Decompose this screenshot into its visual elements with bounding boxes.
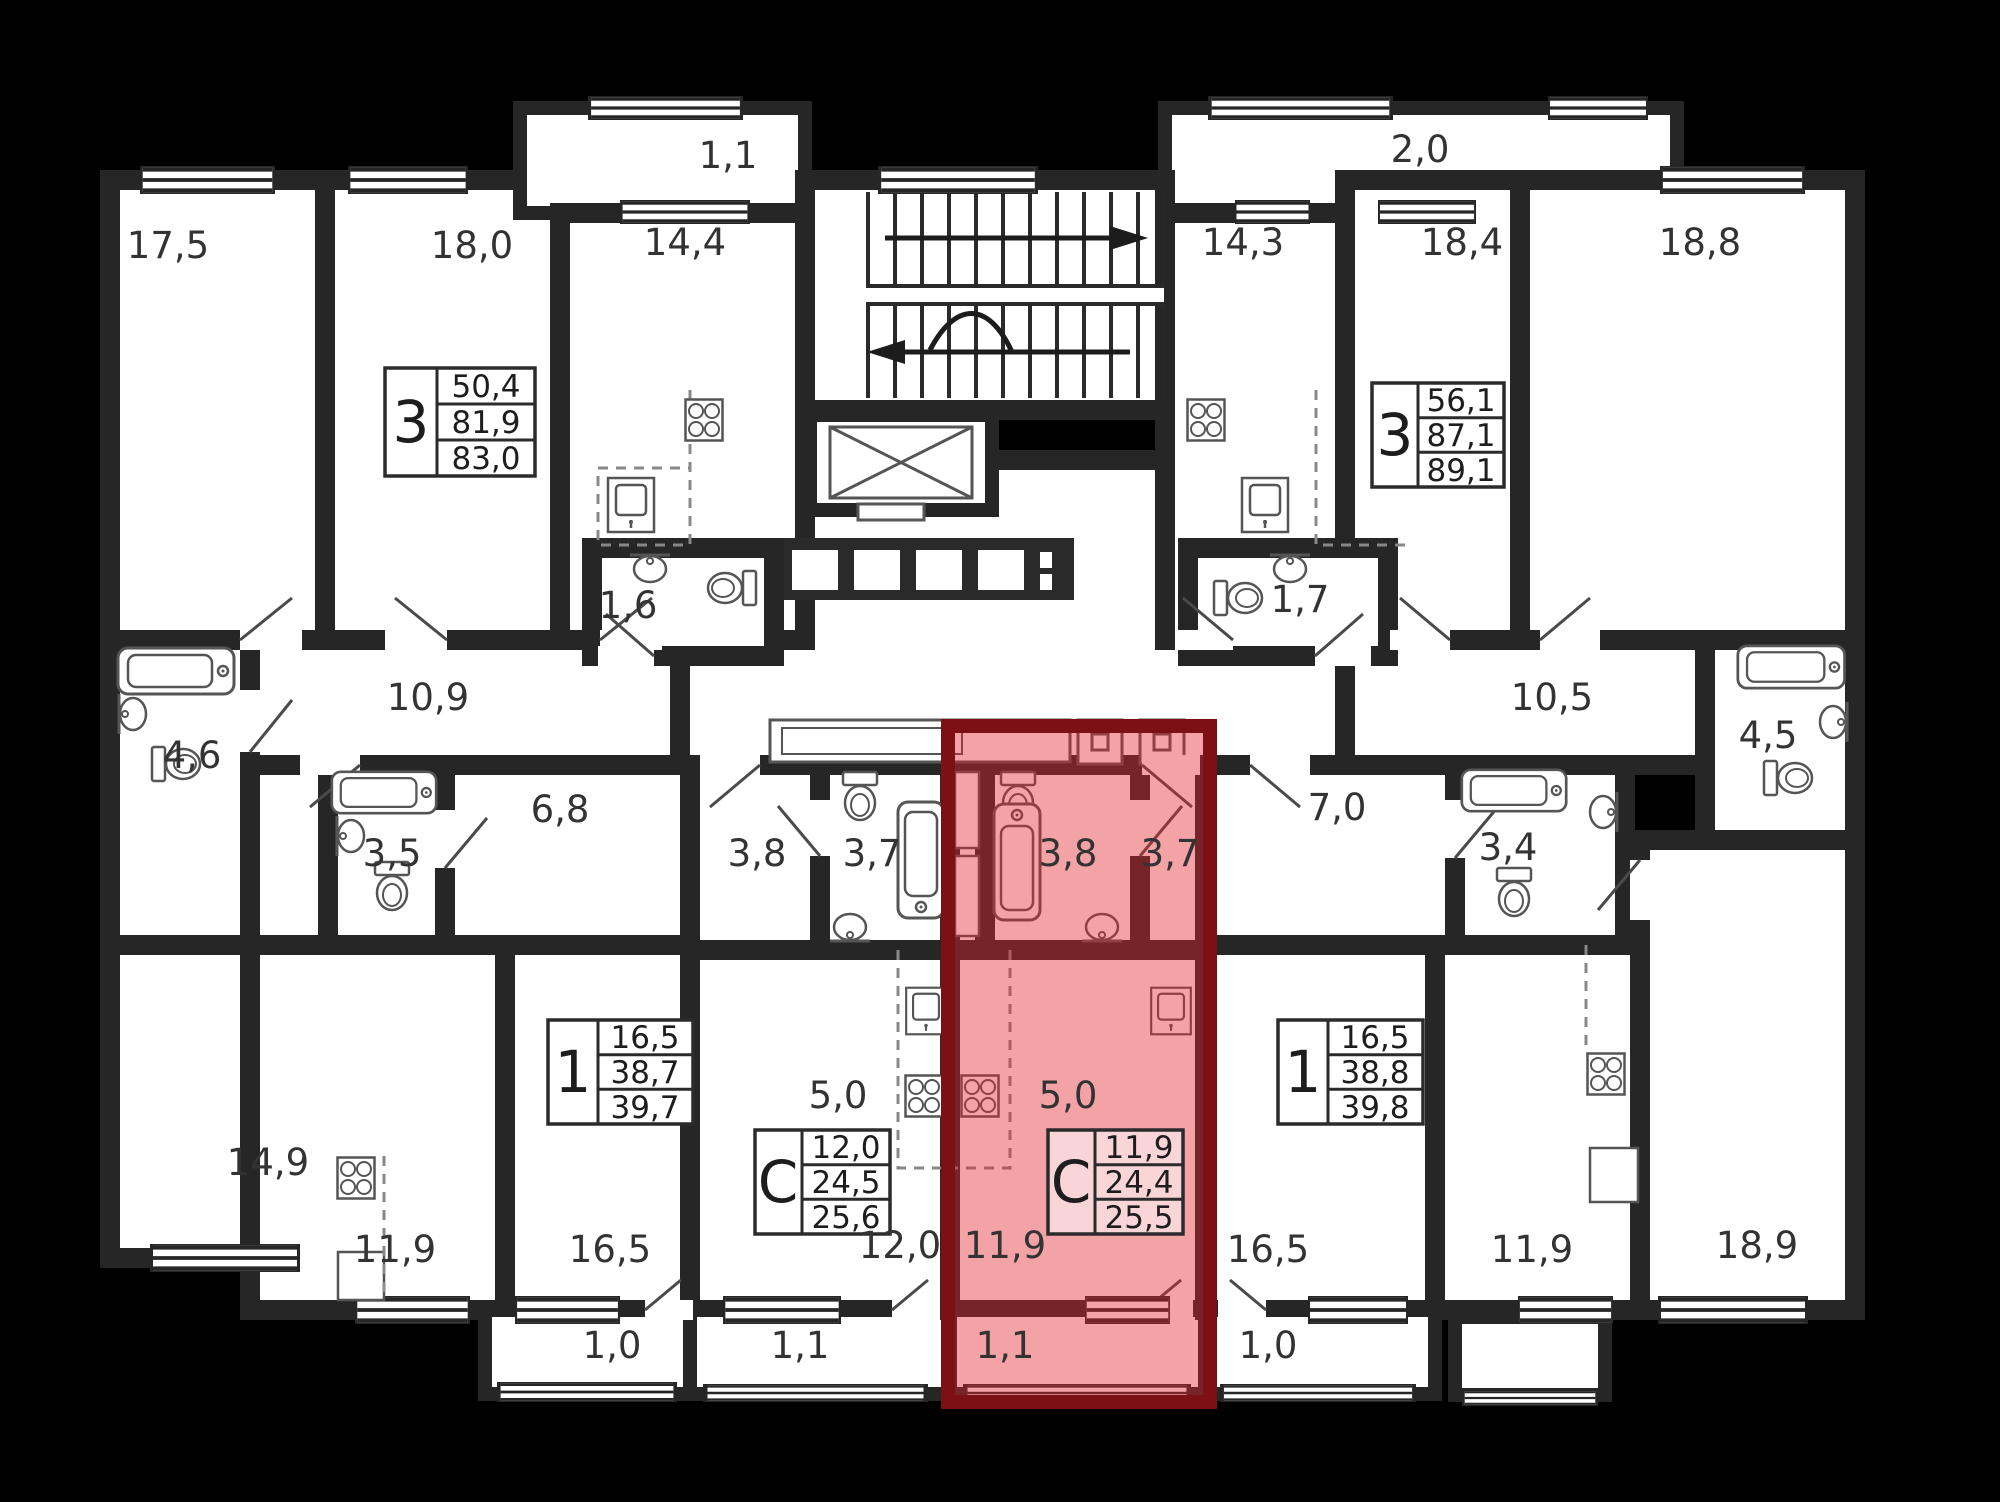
area-label-16-5-right: 16,5 <box>1227 1228 1309 1271</box>
apt-type: 1 <box>1285 1038 1322 1106</box>
service-shafts <box>778 538 1074 600</box>
apt-type: С <box>1051 1148 1092 1216</box>
balcony-unlabeled-right <box>1455 1317 1605 1395</box>
apt-area-mid: 81,9 <box>451 405 520 441</box>
area-label-3-8-left: 3,8 <box>728 832 787 875</box>
apt-type: С <box>758 1148 799 1216</box>
area-label-2-0: 2,0 <box>1391 128 1450 171</box>
apt-area-total: 25,5 <box>1104 1200 1173 1236</box>
area-label-10-9: 10,9 <box>387 676 469 719</box>
area-label-14-4: 14,4 <box>644 221 726 264</box>
apt-area-living: 16,5 <box>1340 1020 1409 1056</box>
area-label-10-5: 10,5 <box>1511 676 1593 719</box>
floor-plan-drawing: 3 50,4 81,9 83,0 3 56,1 87,1 89,1 1 16,5… <box>0 0 2000 1502</box>
apt-area-living: 16,5 <box>610 1020 679 1056</box>
hall-6-8 <box>250 765 690 945</box>
floor-plan-stage: 3 50,4 81,9 83,0 3 56,1 87,1 89,1 1 16,5… <box>0 0 2000 1502</box>
area-label-1-1-mid: 1,1 <box>771 1324 830 1367</box>
info-box-apt3-left: 3 50,4 81,9 83,0 <box>385 368 535 477</box>
area-label-1-0-left: 1,0 <box>583 1324 642 1367</box>
area-label-4-6: 4,6 <box>163 734 222 777</box>
apt-area-total: 89,1 <box>1426 453 1495 489</box>
area-label-17-5: 17,5 <box>127 224 209 267</box>
apt-area-living: 11,9 <box>1104 1130 1173 1166</box>
area-label-11-9-left: 11,9 <box>354 1228 436 1271</box>
area-label-1-7: 1,7 <box>1271 578 1330 621</box>
area-label-14-9: 14,9 <box>227 1141 309 1184</box>
apt-area-mid: 24,4 <box>1104 1165 1173 1201</box>
apt-area-living: 56,1 <box>1426 383 1495 419</box>
balcony-1-1-top <box>520 108 805 213</box>
highlighted-apartment-overlay[interactable] <box>948 726 1210 1402</box>
info-box-apt1-right: 1 16,5 38,8 39,8 <box>1278 1020 1423 1126</box>
area-label-11-9-red: 11,9 <box>964 1224 1046 1267</box>
area-label-12-0: 12,0 <box>859 1224 941 1267</box>
info-box-studio-red: С 11,9 24,4 25,5 <box>1048 1130 1183 1236</box>
elevator <box>810 415 992 520</box>
area-label-5-0-red: 5,0 <box>1039 1074 1098 1117</box>
apt-area-total: 39,8 <box>1340 1090 1409 1126</box>
area-label-18-8: 18,8 <box>1659 221 1741 264</box>
info-box-apt3-right: 3 56,1 87,1 89,1 <box>1372 383 1504 489</box>
apt-area-total: 39,7 <box>610 1090 679 1126</box>
area-label-16-5-left: 16,5 <box>569 1228 651 1271</box>
apt-area-mid: 38,7 <box>610 1055 679 1091</box>
area-label-18-4: 18,4 <box>1421 221 1503 264</box>
area-label-7-0: 7,0 <box>1308 786 1367 829</box>
apt-area-total: 83,0 <box>451 441 520 477</box>
area-label-3-7-red: 3,7 <box>1141 832 1200 875</box>
area-label-3-4: 3,4 <box>1479 826 1538 869</box>
area-label-3-8-red: 3,8 <box>1039 832 1098 875</box>
area-label-1-0-right: 1,0 <box>1239 1324 1298 1367</box>
area-label-4-5: 4,5 <box>1739 714 1798 757</box>
area-label-1-1-red: 1,1 <box>976 1324 1035 1367</box>
area-label-1-6: 1,6 <box>599 584 658 627</box>
area-label-3-5: 3,5 <box>363 832 422 875</box>
apt-area-living: 12,0 <box>811 1130 880 1166</box>
area-label-14-3: 14,3 <box>1202 221 1284 264</box>
bathtub <box>118 648 234 694</box>
apt-type: 1 <box>555 1038 592 1106</box>
apt-area-living: 50,4 <box>451 369 520 405</box>
area-label-18-0: 18,0 <box>431 224 513 267</box>
stairwell <box>805 180 1165 410</box>
area-label-18-9: 18,9 <box>1716 1224 1798 1267</box>
apt-type: 3 <box>1377 401 1414 469</box>
apt-area-mid: 87,1 <box>1426 418 1495 454</box>
apt-area-mid: 24,5 <box>811 1165 880 1201</box>
area-label-1-1-top: 1,1 <box>699 134 758 177</box>
apt-area-mid: 38,8 <box>1340 1055 1409 1091</box>
area-label-3-7-left: 3,7 <box>843 832 902 875</box>
info-box-studio-left: С 12,0 24,5 25,6 <box>755 1130 890 1236</box>
area-label-11-9-right: 11,9 <box>1491 1228 1573 1271</box>
area-label-6-8: 6,8 <box>531 788 590 831</box>
info-box-apt1-left: 1 16,5 38,7 39,7 <box>548 1020 693 1126</box>
apt-type: 3 <box>393 388 430 456</box>
area-label-5-0-left: 5,0 <box>809 1074 868 1117</box>
